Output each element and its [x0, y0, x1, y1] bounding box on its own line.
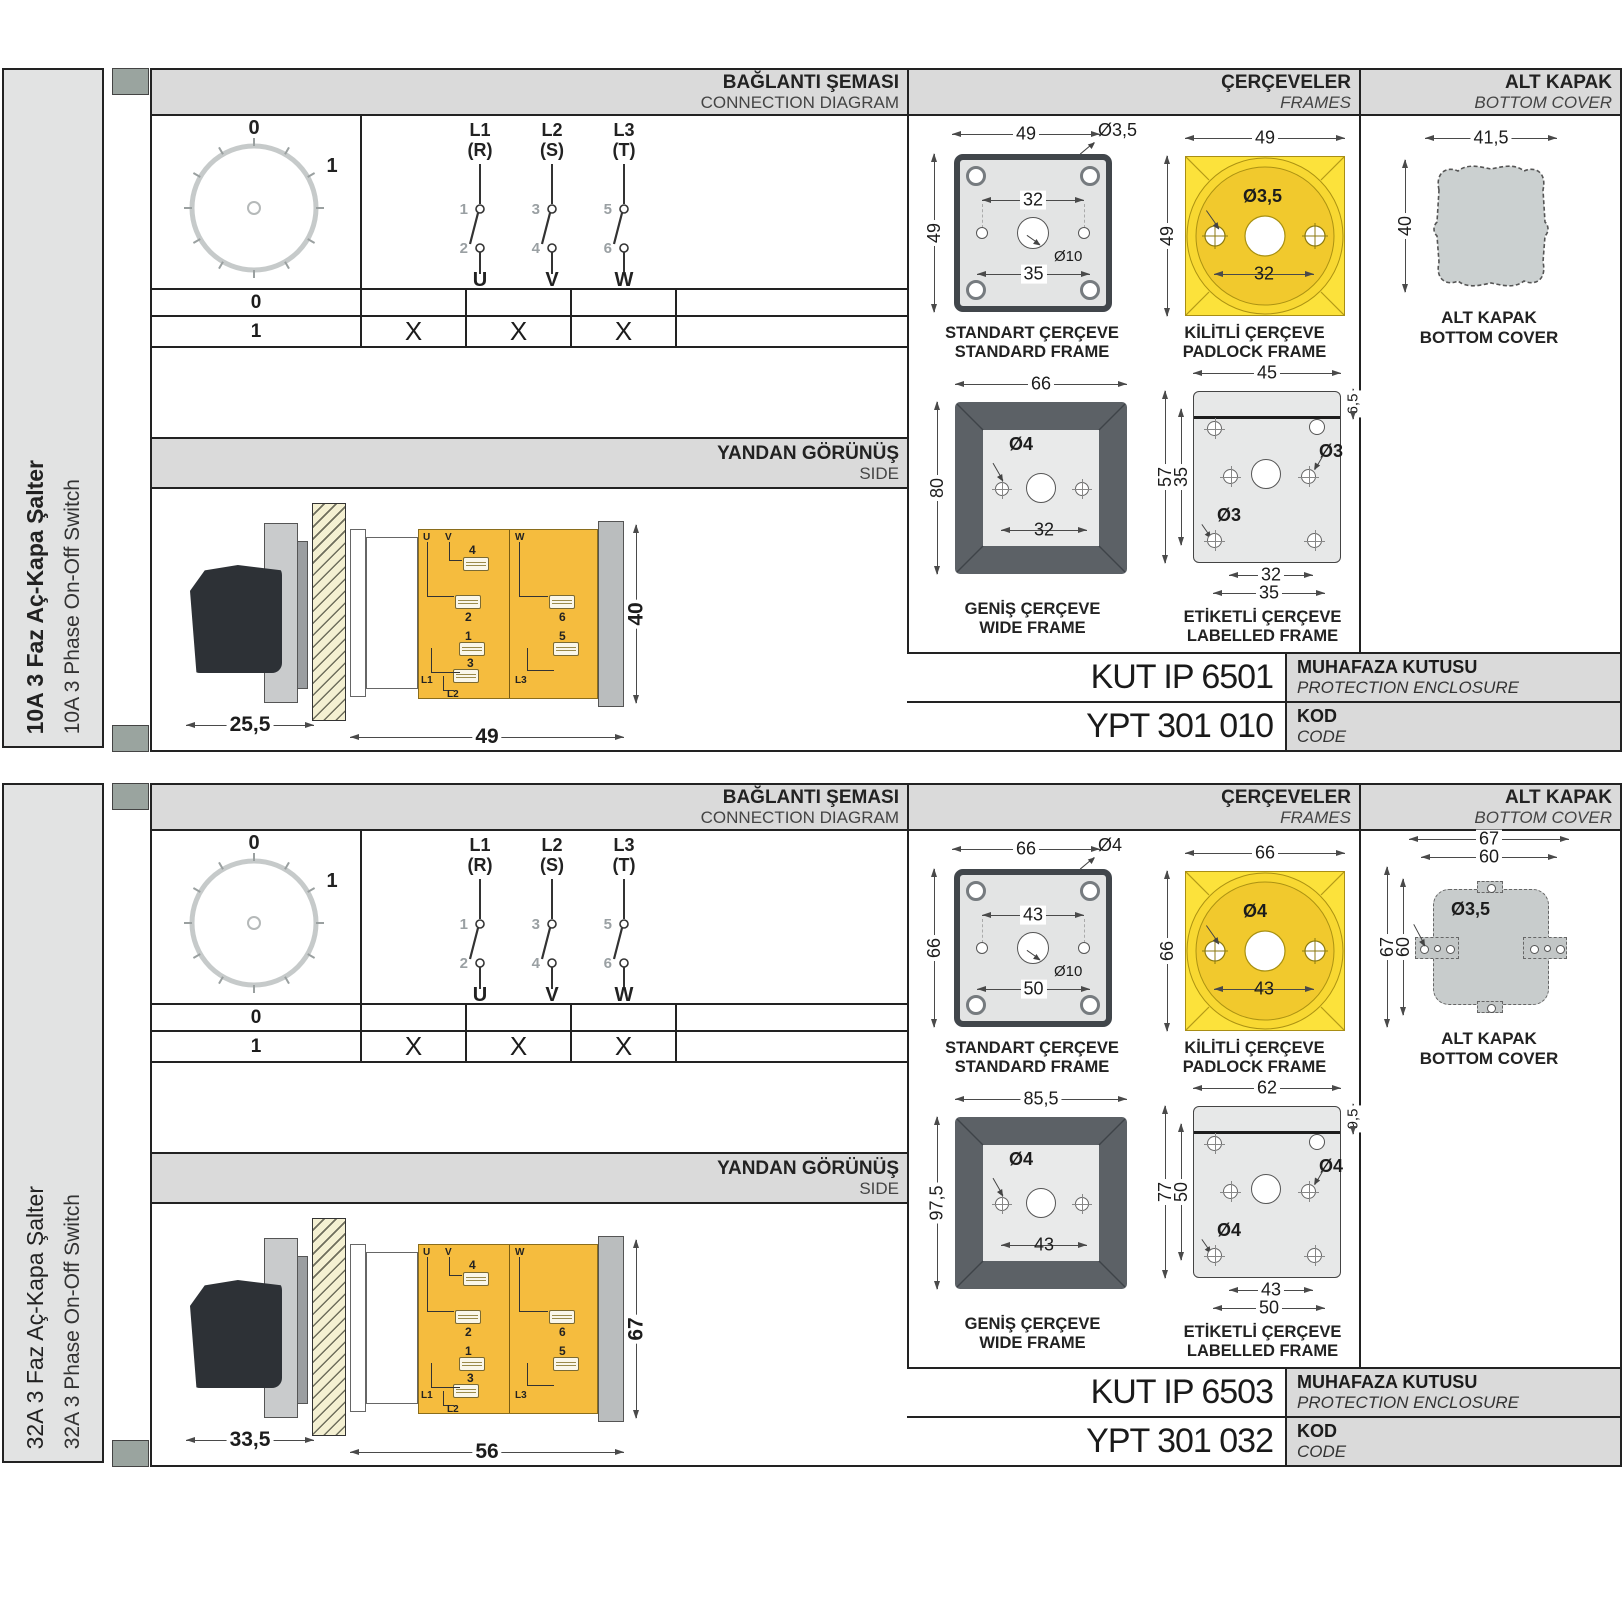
caption-tr: STANDART ÇERÇEVE: [922, 324, 1142, 343]
switch-table-row: 1 X X X: [152, 1032, 907, 1063]
bottom-cover-cell: 41,5 40 ALT KAPAK BOTTOM COVER: [1359, 116, 1620, 652]
mounting-hole: [1223, 469, 1238, 484]
depth-dimension: 25,5: [186, 725, 314, 726]
frame-height-dim: 66: [1167, 871, 1168, 1031]
caption-tr: ETİKETLİ ÇERÇEVE: [1155, 1323, 1370, 1342]
enclosure-label-en: PROTECTION ENCLOSURE: [1297, 678, 1610, 698]
cover-caption: ALT KAPAK BOTTOM COVER: [1389, 308, 1589, 348]
hole-diameter-label: Ø4: [1098, 835, 1122, 856]
extension-line: [1084, 204, 1085, 228]
label-band-dim: 9,5: [1353, 1104, 1354, 1134]
side-hole: [976, 227, 988, 239]
hole-diameter-label: Ø3,5: [1451, 899, 1490, 920]
mounting-hole: [995, 1197, 1009, 1211]
contact-bottom-number: 2: [460, 240, 468, 257]
hole-pitch-dim: 43: [982, 915, 1084, 916]
product-code: YPT 301 032: [907, 1418, 1285, 1465]
frame-body: [1185, 156, 1345, 316]
tab-hole: [1434, 945, 1441, 952]
product-title-en: 10A 3 Phase On-Off Switch: [61, 479, 85, 734]
dim-value: 62: [1254, 1079, 1280, 1098]
shaft-plate: [350, 1244, 366, 1412]
terminal-label: L2: [447, 690, 459, 700]
bottom-cover-cell: ALT KAPAK BOTTOM COVER 67 60 67: [1359, 831, 1620, 1367]
frame-height-dim: 49: [1167, 156, 1168, 316]
caption-en: PADLOCK FRAME: [1157, 1058, 1352, 1077]
hole-pitch-dim: 32: [1229, 575, 1313, 576]
dim-value: 35: [1020, 265, 1046, 284]
width-value: 56: [472, 1441, 501, 1463]
contact-top-number: 5: [604, 916, 612, 933]
cover-shape: [1425, 160, 1557, 292]
caption-en: WIDE FRAME: [925, 1334, 1140, 1353]
enclosure-label-tr: MUHAFAZA KUTUSU: [1297, 657, 1610, 678]
height-dimension: 67: [636, 1240, 637, 1418]
hole-diameter-label: Ø3,5: [1243, 186, 1282, 207]
padlock-frame-graphic: [1186, 872, 1344, 1030]
corner-hole: [1080, 280, 1100, 300]
contact-state-w: [572, 290, 677, 315]
connector-line: [519, 542, 548, 597]
terminal-block: [463, 1272, 489, 1286]
caption-tr: KİLİTLİ ÇERÇEVE: [1157, 324, 1352, 343]
depth-value: 25,5: [227, 714, 274, 736]
center-shaft-hole: [1017, 217, 1049, 249]
caption-en: BOTTOM COVER: [1389, 1049, 1589, 1069]
cover-title-tr: ALT KAPAK: [1505, 787, 1612, 808]
phase-name-label: (R): [468, 855, 493, 875]
frame-width-dim: 66: [952, 849, 1100, 850]
catalog-page: 10A 3 Faz Aç-Kapa Şalter 10A 3 Phase On-…: [0, 0, 1623, 1623]
connection-header: BAĞLANTI ŞEMASI CONNECTION DIAGRAM: [152, 785, 907, 831]
section-content: BAĞLANTI ŞEMASI CONNECTION DIAGRAM ÇERÇE…: [150, 68, 1622, 752]
height-value: 40: [625, 599, 647, 628]
cover-inner-height-dim: 60: [1403, 879, 1404, 1015]
frames-column-divider: [907, 831, 909, 1367]
dim-value: 43: [1020, 906, 1046, 925]
switch-housing: [366, 537, 418, 689]
terminal-number: 4: [469, 544, 476, 556]
dim-value: 85,5: [1020, 1090, 1061, 1109]
connection-header: BAĞLANTI ŞEMASI CONNECTION DIAGRAM: [152, 70, 907, 116]
frame-height-dim: 80: [937, 402, 938, 574]
enclosure-code-label: MUHAFAZA KUTUSU PROTECTION ENCLOSURE: [1285, 1369, 1620, 1416]
side-view-title-en: SIDE: [859, 1179, 899, 1198]
dim-value: 50: [1172, 1179, 1191, 1205]
mounting-hole: [1307, 533, 1322, 548]
switch-handle: [190, 1280, 282, 1388]
mounting-hole: [1207, 421, 1222, 436]
phase-name-label: (T): [613, 855, 636, 875]
dim-value: 66: [1158, 938, 1177, 964]
terminal-number: 6: [559, 1326, 566, 1338]
code-label-tr: KOD: [1297, 706, 1610, 727]
contact-state-v: [467, 1005, 572, 1030]
terminal-block: [549, 595, 575, 609]
dim-value: 35: [1256, 584, 1282, 603]
terminal-block: [553, 642, 579, 656]
dim-value: 49: [1252, 129, 1278, 148]
shaft-plate: [350, 529, 366, 697]
index-tab-top: [112, 783, 149, 810]
frame-width-dim: 66: [955, 384, 1127, 385]
corner-hole: [966, 280, 986, 300]
product-sidebar: 10A 3 Faz Aç-Kapa Şalter 10A 3 Phase On-…: [2, 68, 104, 748]
connection-title-en: CONNECTION DIAGRAM: [701, 808, 899, 827]
caption-tr: ETİKETLİ ÇERÇEVE: [1155, 608, 1370, 627]
contact-state-u: [362, 1005, 467, 1030]
contact-bottom-number: 6: [604, 240, 612, 257]
contact-bottom-number: 4: [532, 955, 541, 972]
mounting-hole: [995, 482, 1009, 496]
terminal-number: 5: [559, 630, 566, 642]
dial-position-off: 0: [248, 832, 259, 854]
height-value: 67: [625, 1314, 647, 1343]
enclosure-code-row: KUT IP 6501 MUHAFAZA KUTUSU PROTECTION E…: [907, 652, 1620, 701]
code-label-en: CODE: [1297, 1442, 1610, 1462]
hole-diameter-label: Ø3: [1217, 505, 1241, 526]
product-code-row: YPT 301 010 KOD CODE: [907, 701, 1620, 750]
padlock-hole: [1309, 419, 1325, 435]
product-title-tr: 32A 3 Faz Aç-Kapa Şalter: [22, 1186, 49, 1449]
terminal-block: [455, 1310, 481, 1324]
code-label-tr: KOD: [1297, 1421, 1610, 1442]
terminal-block: [549, 1310, 575, 1324]
product-section: 32A 3 Faz Aç-Kapa Şalter 32A 3 Phase On-…: [0, 783, 1623, 1467]
empty-cell: [677, 290, 907, 315]
cover-header: ALT KAPAK BOTTOM COVER: [1359, 785, 1620, 831]
empty-cell: [677, 317, 907, 346]
phase-name-label: (S): [540, 855, 564, 875]
terminal-label: L1: [421, 676, 433, 686]
caption-tr: KİLİTLİ ÇERÇEVE: [1157, 1039, 1352, 1058]
phase-supply-label: L1: [469, 835, 490, 855]
product-code-row: YPT 301 032 KOD CODE: [907, 1416, 1620, 1465]
mounting-panel-hatch: [312, 1218, 346, 1436]
leader-line: [1080, 142, 1094, 154]
terminal-number: 2: [465, 611, 472, 623]
rotary-dial-cell: 0 1: [152, 116, 362, 290]
connector-line: [527, 648, 554, 671]
contact-state-w: X: [572, 317, 677, 346]
contact-bottom-number: 2: [460, 955, 468, 972]
terminal-block: [553, 1357, 579, 1371]
cover-inner-width-dim: 60: [1421, 857, 1557, 858]
caption-tr: ALT KAPAK: [1389, 308, 1589, 328]
switch-table-row: 1 X X X: [152, 317, 907, 348]
dim-value: 66: [925, 935, 944, 961]
switch-position: 1: [152, 1032, 362, 1061]
code-label-en: CODE: [1297, 727, 1610, 747]
connection-title-tr: BAĞLANTI ŞEMASI: [723, 72, 899, 93]
load-terminal-label: U: [473, 984, 487, 1003]
hole-diameter-label: Ø3: [1319, 441, 1343, 462]
corner-hole: [1080, 995, 1100, 1015]
contact-state-u: [362, 290, 467, 315]
tab-hole: [1530, 945, 1539, 954]
standard-frame-caption: STANDART ÇERÇEVE STANDARD FRAME: [922, 1039, 1142, 1078]
cover-title-en: BOTTOM COVER: [1474, 93, 1612, 112]
enclosure-code: KUT IP 6501: [907, 654, 1285, 701]
contact-top-number: 3: [532, 201, 540, 218]
connector-line: [527, 1363, 554, 1386]
dim-value: 66: [1013, 840, 1039, 859]
terminal-block: [459, 1357, 485, 1371]
index-tab-bottom: [112, 1440, 149, 1467]
frame-width-dim: 85,5: [955, 1099, 1127, 1100]
terminal-block: [459, 642, 485, 656]
dim-value: 32: [1251, 265, 1277, 284]
padlock-frame-caption: KİLİTLİ ÇERÇEVE PADLOCK FRAME: [1157, 1039, 1352, 1078]
product-code-label: KOD CODE: [1285, 1418, 1620, 1465]
dim-value: 60: [1476, 848, 1502, 867]
mounting-hole: [1207, 533, 1222, 548]
terminal-number: 2: [465, 1326, 472, 1338]
contact-state-v: [467, 290, 572, 315]
extension-line: [982, 204, 983, 228]
contact-state-u: X: [362, 1032, 467, 1061]
phase-name-label: (S): [540, 140, 564, 160]
cover-title-en: BOTTOM COVER: [1474, 808, 1612, 827]
center-shaft-hole: [1251, 1174, 1281, 1204]
label-band: [1194, 1107, 1340, 1134]
load-terminal-label: V: [545, 984, 559, 1003]
hole-diameter-label: Ø3,5: [1098, 120, 1137, 141]
enclosure-code-label: MUHAFAZA KUTUSU PROTECTION ENCLOSURE: [1285, 654, 1620, 701]
contact-state-v: X: [467, 1032, 572, 1061]
standard-frame-caption: STANDART ÇERÇEVE STANDARD FRAME: [922, 324, 1142, 363]
tab-hole: [1556, 945, 1565, 954]
hole-diameter-label: Ø4: [1243, 901, 1267, 922]
padlock-frame-caption: KİLİTLİ ÇERÇEVE PADLOCK FRAME: [1157, 324, 1352, 363]
caption-tr: STANDART ÇERÇEVE: [922, 1039, 1142, 1058]
contact-top-number: 3: [532, 916, 540, 933]
terminal-number: 3: [467, 1372, 474, 1384]
side-view-title-en: SIDE: [859, 464, 899, 483]
enclosure-label-en: PROTECTION ENCLOSURE: [1297, 1393, 1610, 1413]
dim-value: 50: [1020, 980, 1046, 999]
mounting-hole: [1307, 1248, 1322, 1263]
width-value: 49: [472, 726, 501, 748]
dim-value: 40: [1396, 213, 1415, 239]
width-dimension: 49: [350, 737, 624, 738]
tab-hole: [1544, 945, 1551, 952]
contact-top-number: 1: [460, 916, 468, 933]
terminal-label: L1: [421, 1391, 433, 1401]
terminal-number: 1: [465, 630, 472, 642]
frame-width-dim: 49: [952, 134, 1100, 135]
caption-tr: GENİŞ ÇERÇEVE: [925, 600, 1140, 619]
dim-value: 49: [925, 220, 944, 246]
hole-pitch-dim: 43: [1001, 1245, 1087, 1246]
padlock-hole: [1309, 1134, 1325, 1150]
mounting-hole: [1223, 1184, 1238, 1199]
width-dimension: 56: [350, 1452, 624, 1453]
mounting-hole: [1207, 1248, 1222, 1263]
labelled-frame-drawing: 45 6,5 57 35 Ø3: [1155, 365, 1370, 605]
cover-header: ALT KAPAK BOTTOM COVER: [1359, 70, 1620, 116]
center-shaft-hole: [1026, 473, 1056, 503]
frames-column-divider: [907, 116, 909, 652]
switch-table-row: 0: [152, 290, 907, 317]
side-hole: [1078, 227, 1090, 239]
empty-cell: [677, 1032, 907, 1061]
mounting-hole: [1075, 1197, 1089, 1211]
product-sidebar: 32A 3 Faz Aç-Kapa Şalter 32A 3 Phase On-…: [2, 783, 104, 1463]
switch-table-row: 0: [152, 1005, 907, 1032]
caption-en: LABELLED FRAME: [1155, 1342, 1370, 1361]
dial-position-on: 1: [326, 155, 337, 177]
leader-line: [1080, 857, 1094, 869]
dial-position-on: 1: [326, 870, 337, 892]
dim-value: 32: [1020, 191, 1046, 210]
frame-height-dim: 66: [934, 869, 935, 1027]
hole-diameter-label: Ø4: [1217, 1220, 1241, 1241]
mounting-hole: [1301, 469, 1316, 484]
load-terminal-label: V: [545, 269, 559, 288]
product-code-label: KOD CODE: [1285, 703, 1620, 750]
dim-value: 45: [1254, 364, 1280, 383]
frames-title-en: FRAMES: [1280, 808, 1351, 827]
rear-plate: [598, 1236, 624, 1422]
standard-frame-drawing: 66 Ø4 66 43: [922, 837, 1142, 1037]
dim-value: 66: [1028, 375, 1054, 394]
phase-supply-label: L3: [613, 835, 634, 855]
section-content: BAĞLANTI ŞEMASI CONNECTION DIAGRAM ÇERÇE…: [150, 783, 1622, 1467]
cover-outer-height-dim: 67: [1387, 867, 1388, 1027]
dim-value: 97,5: [928, 1182, 947, 1223]
product-title-tr: 10A 3 Faz Aç-Kapa Şalter: [22, 460, 49, 734]
cover-tab-right: [1523, 937, 1567, 959]
connection-title-en: CONNECTION DIAGRAM: [701, 93, 899, 112]
hole-diameter-label: Ø4: [1319, 1156, 1343, 1177]
hole-pitch-v-dim: 35: [1181, 409, 1182, 545]
wide-frame-caption: GENİŞ ÇERÇEVE WIDE FRAME: [925, 600, 1140, 639]
tab-hole: [1487, 884, 1496, 893]
frames-title-en: FRAMES: [1280, 93, 1351, 112]
wide-frame-caption: GENİŞ ÇERÇEVE WIDE FRAME: [925, 1315, 1140, 1354]
center-shaft-hole: [1251, 459, 1281, 489]
product-title-en: 32A 3 Phase On-Off Switch: [61, 1194, 85, 1449]
mounting-hole: [1301, 1184, 1316, 1199]
side-hole: [1078, 942, 1090, 954]
frame-body: [1185, 871, 1345, 1031]
connector-line: [427, 1257, 454, 1312]
hole-pitch-dim: 35: [1213, 593, 1325, 594]
label-band-dim: 6,5: [1353, 389, 1354, 419]
phase-supply-label: L2: [541, 835, 562, 855]
connection-title-tr: BAĞLANTI ŞEMASI: [723, 787, 899, 808]
caption-tr: ALT KAPAK: [1389, 1029, 1589, 1049]
cover-title-tr: ALT KAPAK: [1505, 72, 1612, 93]
mounting-hole: [1075, 482, 1089, 496]
phase-supply-label: L1: [469, 120, 490, 140]
center-shaft-hole: [1017, 932, 1049, 964]
contact-state-u: X: [362, 317, 467, 346]
body-divider: [509, 530, 510, 698]
caption-en: LABELLED FRAME: [1155, 627, 1370, 646]
hole-pitch-dim: 32: [1001, 530, 1087, 531]
terminal-number: 6: [559, 611, 566, 623]
rotary-dial-cell: 0 1: [152, 831, 362, 1005]
product-code: YPT 301 010: [907, 703, 1285, 750]
wide-frame-drawing: 85,5 97,5 Ø4: [925, 1087, 1140, 1312]
hole-diameter-label: Ø4: [1009, 1149, 1033, 1170]
wide-frame-drawing: 66 80 Ø4: [925, 372, 1140, 597]
hole-pitch-dim: 43: [1214, 989, 1314, 990]
enclosure-code-row: KUT IP 6503 MUHAFAZA KUTUSU PROTECTION E…: [907, 1367, 1620, 1416]
side-view-title-tr: YANDAN GÖRÜNÜŞ: [717, 443, 899, 464]
cover-caption: ALT KAPAK BOTTOM COVER: [1389, 1029, 1589, 1069]
side-view-header: YANDAN GÖRÜNÜŞ SIDE: [152, 437, 907, 489]
label-band: [1194, 392, 1340, 419]
terminal-number: 4: [469, 1259, 476, 1271]
contact-top-number: 5: [604, 201, 612, 218]
phase-supply-label: L3: [613, 120, 634, 140]
contact-diagram-cell: L1 (R) 1 2 U L2 (S): [362, 831, 907, 1005]
terminal-label: L3: [515, 676, 527, 686]
cover-width-dim: 41,5: [1425, 138, 1557, 139]
enclosure-label-tr: MUHAFAZA KUTUSU: [1297, 1372, 1610, 1393]
contact-state-v: X: [467, 317, 572, 346]
height-dimension: 40: [636, 525, 637, 703]
frame-height-dim: 57: [1165, 391, 1166, 563]
caption-en: STANDARD FRAME: [922, 343, 1142, 362]
caption-en: WIDE FRAME: [925, 619, 1140, 638]
labelled-frame-caption: ETİKETLİ ÇERÇEVE LABELLED FRAME: [1155, 1323, 1370, 1362]
center-hole-label: Ø10: [1054, 248, 1082, 265]
frame-height-dim: 77: [1165, 1106, 1166, 1278]
dim-value: 41,5: [1470, 129, 1511, 148]
rear-plate: [598, 521, 624, 707]
dim-value: 66: [1252, 844, 1278, 863]
rotary-dial-drawing: 0 1: [152, 116, 360, 288]
hole-pitch-dim: 32: [1214, 274, 1314, 275]
terminal-block: [455, 595, 481, 609]
index-tab-top: [112, 68, 149, 95]
corner-hole: [966, 995, 986, 1015]
standard-frame-drawing: 49 Ø3,5 49 32: [922, 122, 1142, 322]
cover-outer-width-dim: 67: [1409, 839, 1569, 840]
side-view-title-tr: YANDAN GÖRÜNÜŞ: [717, 1158, 899, 1179]
center-shaft-hole: [1026, 1188, 1056, 1218]
frames-header: ÇERÇEVELER FRAMES: [907, 70, 1359, 116]
dim-value: 32: [1031, 521, 1057, 540]
frame-height-dim: 49: [934, 154, 935, 312]
load-terminal-label: W: [615, 269, 634, 288]
dim-value: 60: [1394, 934, 1413, 960]
terminal-label: L3: [515, 1391, 527, 1401]
contact-diagram-drawing: L1 (R) 1 2 U L2 (S): [362, 831, 907, 1003]
frames-title-tr: ÇERÇEVELER: [1221, 787, 1351, 808]
contact-top-number: 1: [460, 201, 468, 218]
corner-hole: [1080, 881, 1100, 901]
switch-position: 0: [152, 290, 362, 315]
contact-state-w: X: [572, 1032, 677, 1061]
caption-tr: GENİŞ ÇERÇEVE: [925, 1315, 1140, 1334]
connector-line: [427, 542, 454, 597]
switch-position: 1: [152, 317, 362, 346]
caption-en: PADLOCK FRAME: [1157, 343, 1352, 362]
phase-name-label: (R): [468, 140, 493, 160]
empty-cell: [677, 1005, 907, 1030]
mounting-panel-hatch: [312, 503, 346, 721]
contact-diagram-drawing: L1 (R) 1 2 U L2 (S): [362, 116, 907, 288]
hole-pitch-dim: 50: [977, 989, 1090, 990]
caption-en: STANDARD FRAME: [922, 1058, 1142, 1077]
hole-diameter-label: Ø4: [1009, 434, 1033, 455]
terminal-number: 5: [559, 1345, 566, 1357]
